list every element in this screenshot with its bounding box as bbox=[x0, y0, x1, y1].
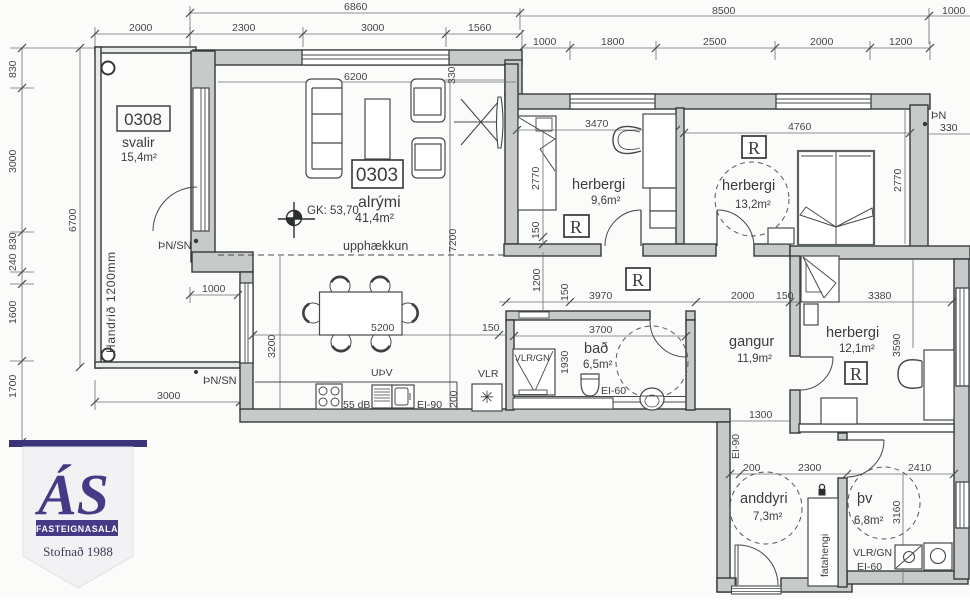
svg-text:3160: 3160 bbox=[891, 500, 903, 524]
svg-text:2000: 2000 bbox=[129, 22, 153, 34]
svg-text:5200: 5200 bbox=[371, 322, 395, 334]
svg-text:2000: 2000 bbox=[810, 36, 834, 48]
svg-text:ÁS: ÁS bbox=[35, 462, 109, 527]
svg-text:2770: 2770 bbox=[530, 166, 542, 190]
svg-text:3200: 3200 bbox=[266, 334, 278, 358]
svg-text:6860: 6860 bbox=[344, 1, 368, 13]
svg-text:EI-90: EI-90 bbox=[730, 434, 742, 459]
svg-text:830: 830 bbox=[7, 60, 19, 78]
svg-text:ÞN/SN: ÞN/SN bbox=[158, 240, 192, 252]
svg-text:R: R bbox=[632, 270, 644, 290]
svg-text:2300: 2300 bbox=[798, 462, 822, 474]
svg-text:1000: 1000 bbox=[942, 5, 966, 17]
svg-text:3000: 3000 bbox=[157, 390, 181, 402]
svg-text:12,1m²: 12,1m² bbox=[839, 343, 875, 355]
svg-text:6200: 6200 bbox=[344, 71, 368, 83]
svg-text:6700: 6700 bbox=[67, 208, 79, 232]
svg-text:svalir: svalir bbox=[122, 134, 155, 150]
svg-text:3380: 3380 bbox=[868, 290, 892, 302]
svg-text:330: 330 bbox=[446, 66, 458, 84]
svg-text:3000: 3000 bbox=[7, 149, 19, 173]
svg-text:Handrið 1200mm: Handrið 1200mm bbox=[104, 251, 118, 353]
svg-text:0303: 0303 bbox=[356, 165, 398, 186]
svg-text:1560: 1560 bbox=[468, 22, 492, 34]
svg-text:11,9m²: 11,9m² bbox=[737, 353, 772, 365]
svg-text:GK: 53,70: GK: 53,70 bbox=[307, 205, 359, 217]
svg-text:ÞN/SN: ÞN/SN bbox=[203, 375, 237, 387]
svg-text:upphækkun: upphækkun bbox=[343, 239, 408, 253]
svg-text:bað: bað bbox=[584, 341, 608, 357]
svg-text:anddyri: anddyri bbox=[740, 491, 788, 507]
svg-text:EI-60: EI-60 bbox=[601, 385, 626, 397]
svg-text:3700: 3700 bbox=[589, 324, 613, 336]
svg-text:7200: 7200 bbox=[447, 228, 459, 252]
svg-text:herbergi: herbergi bbox=[572, 177, 625, 193]
svg-text:830: 830 bbox=[7, 232, 19, 250]
svg-text:1800: 1800 bbox=[601, 36, 625, 48]
svg-text:1200: 1200 bbox=[531, 268, 543, 292]
svg-text:EI-90: EI-90 bbox=[417, 399, 442, 411]
svg-text:1930: 1930 bbox=[559, 350, 571, 374]
svg-text:8500: 8500 bbox=[712, 5, 736, 17]
svg-text:3590: 3590 bbox=[891, 333, 903, 357]
svg-text:3970: 3970 bbox=[589, 290, 613, 302]
svg-text:6,5m²: 6,5m² bbox=[583, 359, 613, 371]
svg-text:240: 240 bbox=[7, 253, 19, 271]
svg-text:R: R bbox=[850, 364, 862, 384]
svg-text:200: 200 bbox=[448, 390, 460, 408]
svg-text:herbergi: herbergi bbox=[722, 178, 775, 194]
svg-text:2500: 2500 bbox=[703, 36, 727, 48]
svg-text:VLR/GN: VLR/GN bbox=[853, 547, 892, 559]
svg-text:1600: 1600 bbox=[7, 300, 19, 324]
svg-text:2410: 2410 bbox=[908, 462, 932, 474]
svg-text:6,8m²: 6,8m² bbox=[854, 515, 884, 527]
svg-text:150: 150 bbox=[559, 283, 571, 301]
svg-text:R: R bbox=[748, 138, 760, 158]
svg-text:þv: þv bbox=[857, 491, 873, 507]
svg-text:alrými: alrými bbox=[358, 194, 401, 211]
svg-text:VLR: VLR bbox=[478, 368, 499, 380]
svg-text:9,6m²: 9,6m² bbox=[591, 195, 621, 207]
svg-text:330: 330 bbox=[940, 122, 958, 134]
svg-text:4760: 4760 bbox=[788, 121, 812, 133]
svg-text:EI-60: EI-60 bbox=[857, 561, 882, 573]
svg-text:herbergi: herbergi bbox=[826, 325, 879, 341]
svg-text:✳: ✳ bbox=[480, 388, 494, 407]
svg-text:150: 150 bbox=[530, 221, 542, 239]
svg-text:13,2m²: 13,2m² bbox=[735, 199, 771, 211]
svg-text:150: 150 bbox=[776, 290, 794, 302]
svg-text:1200: 1200 bbox=[889, 36, 913, 48]
svg-text:gangur: gangur bbox=[729, 334, 774, 350]
svg-text:UÞV: UÞV bbox=[371, 367, 393, 379]
svg-text:0308: 0308 bbox=[124, 110, 162, 129]
svg-text:ÞN: ÞN bbox=[931, 110, 946, 122]
svg-text:1700: 1700 bbox=[7, 374, 19, 398]
svg-text:41,4m²: 41,4m² bbox=[355, 211, 394, 225]
svg-text:7,3m²: 7,3m² bbox=[753, 511, 783, 523]
svg-text:2770: 2770 bbox=[892, 168, 904, 192]
svg-text:15,4m²: 15,4m² bbox=[121, 152, 157, 164]
svg-text:1000: 1000 bbox=[533, 36, 557, 48]
svg-text:200: 200 bbox=[743, 462, 761, 474]
svg-text:150: 150 bbox=[482, 322, 500, 334]
svg-text:1000: 1000 bbox=[202, 283, 226, 295]
svg-text:VLR/GN: VLR/GN bbox=[515, 353, 551, 364]
svg-text:Stofnað 1988: Stofnað 1988 bbox=[43, 544, 113, 559]
svg-text:55 dB: 55 dB bbox=[343, 399, 370, 411]
svg-text:3470: 3470 bbox=[585, 118, 609, 130]
svg-text:3000: 3000 bbox=[361, 22, 385, 34]
svg-text:1300: 1300 bbox=[749, 409, 773, 421]
svg-text:R: R bbox=[570, 217, 582, 237]
svg-text:2000: 2000 bbox=[731, 290, 755, 302]
svg-text:2300: 2300 bbox=[232, 22, 256, 34]
svg-text:FASTEIGNASALA: FASTEIGNASALA bbox=[36, 524, 118, 534]
svg-text:fatahengi: fatahengi bbox=[819, 534, 831, 577]
